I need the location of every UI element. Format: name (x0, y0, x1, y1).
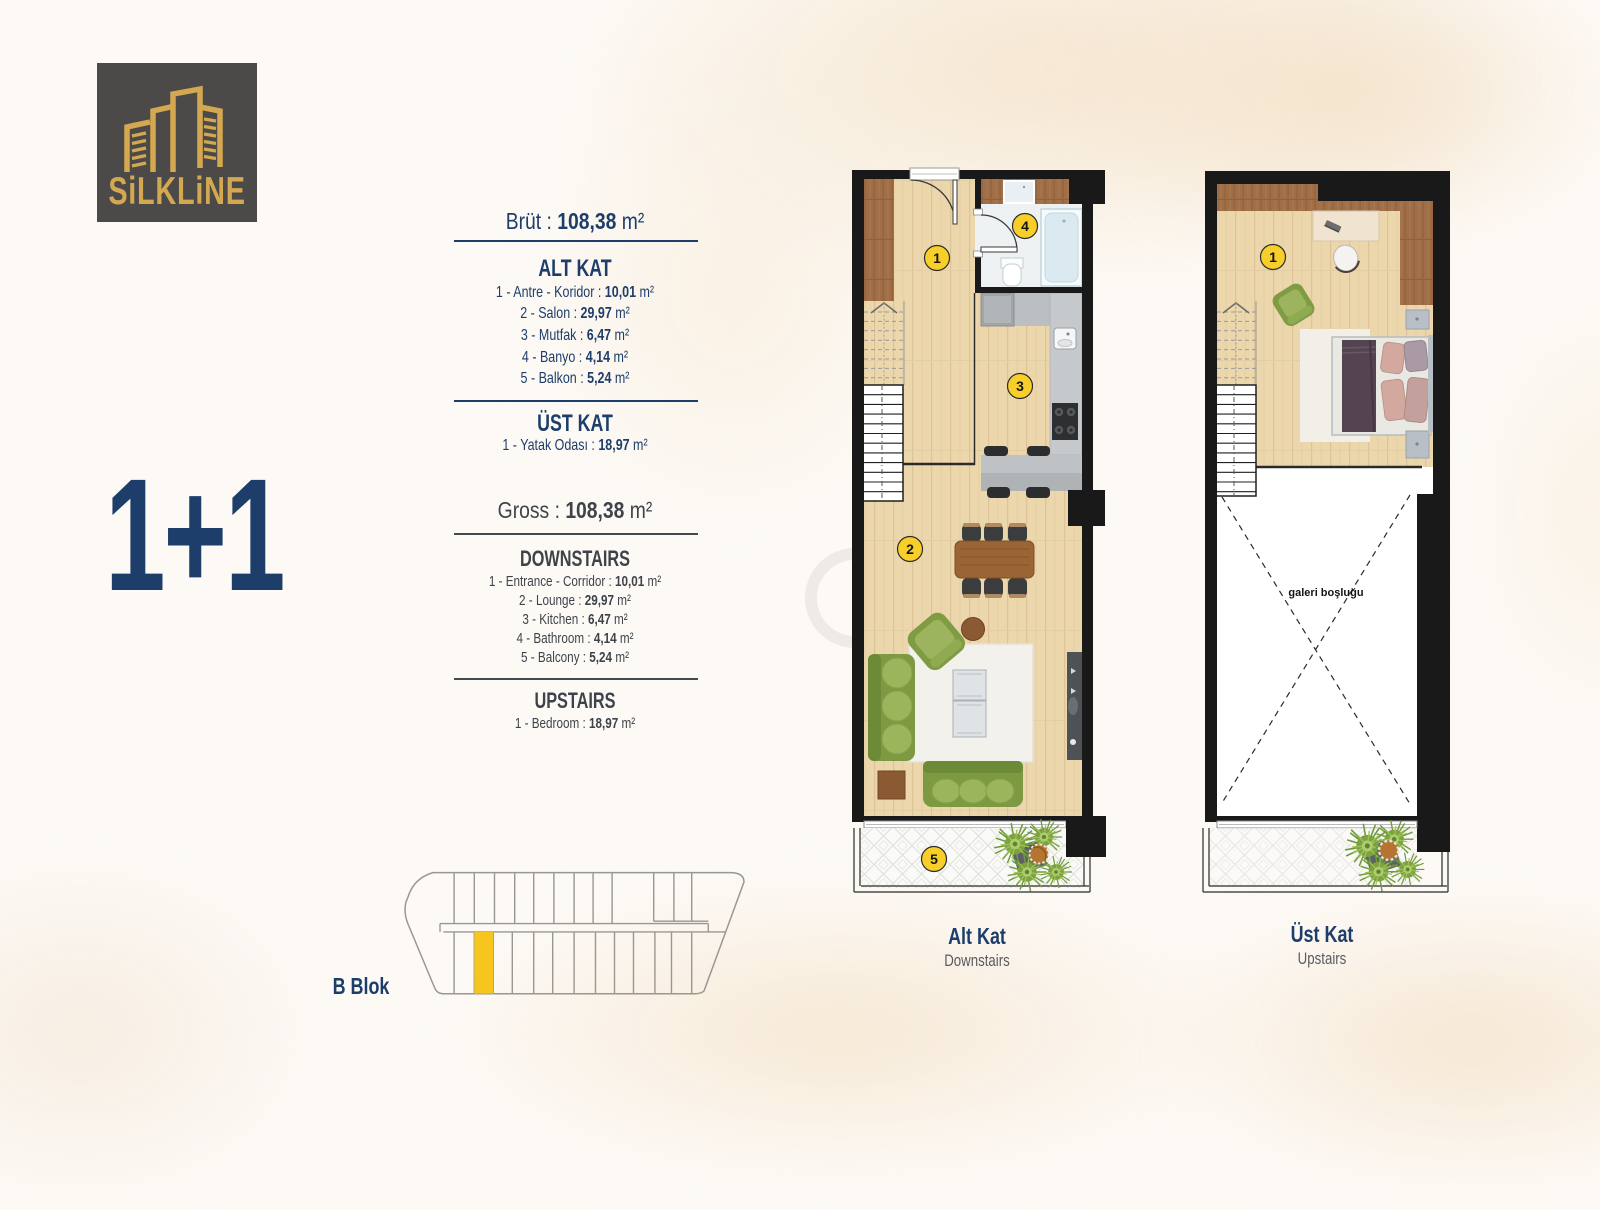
svg-text:1: 1 (933, 250, 941, 266)
svg-text:2: 2 (906, 541, 914, 557)
svg-text:SiLKLiNE: SiLKLiNE (108, 170, 245, 213)
svg-text:galeri boşluğu: galeri boşluğu (1288, 587, 1363, 599)
svg-text:3: 3 (1016, 378, 1024, 394)
svg-text:4: 4 (1021, 218, 1029, 234)
svg-text:1: 1 (1269, 249, 1277, 265)
svg-text:5: 5 (930, 851, 938, 867)
